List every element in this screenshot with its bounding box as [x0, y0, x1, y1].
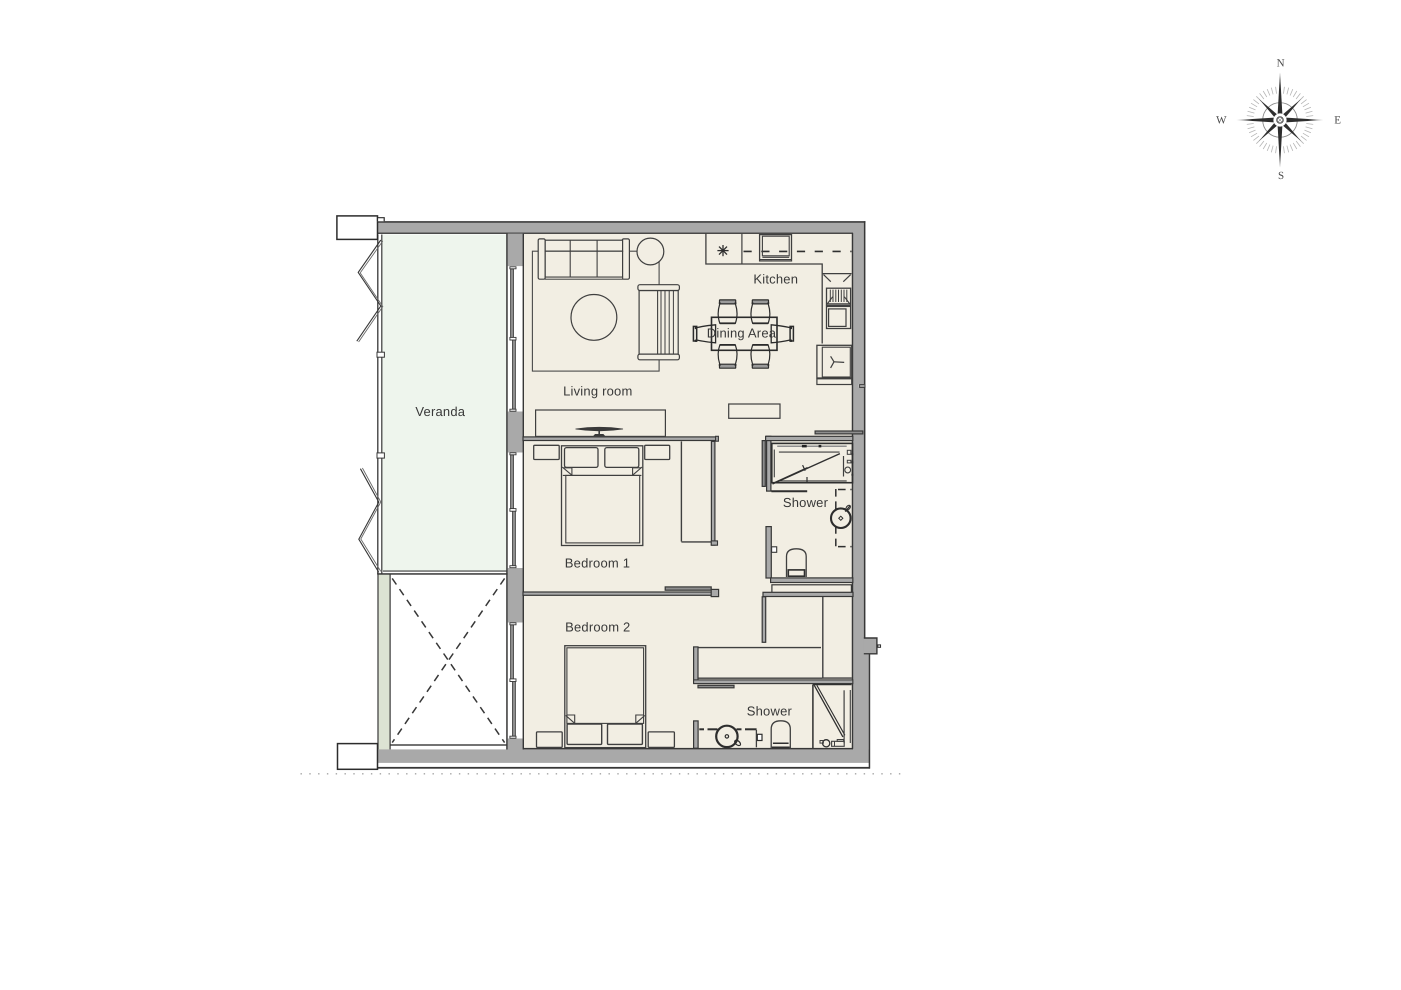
svg-text:W: W — [1216, 114, 1227, 126]
svg-text:Kitchen: Kitchen — [753, 272, 798, 287]
svg-text:Dining Area: Dining Area — [707, 326, 777, 341]
svg-text:Veranda: Veranda — [415, 404, 465, 419]
svg-text:Living room: Living room — [563, 384, 632, 399]
svg-text:N: N — [1277, 58, 1285, 70]
svg-text:Bedroom 1: Bedroom 1 — [565, 556, 630, 571]
svg-text:Bedroom 2: Bedroom 2 — [565, 620, 630, 635]
svg-text:Shower: Shower — [747, 704, 793, 719]
svg-text:Shower: Shower — [783, 495, 829, 510]
svg-text:E: E — [1334, 114, 1341, 126]
svg-text:S: S — [1278, 170, 1284, 182]
